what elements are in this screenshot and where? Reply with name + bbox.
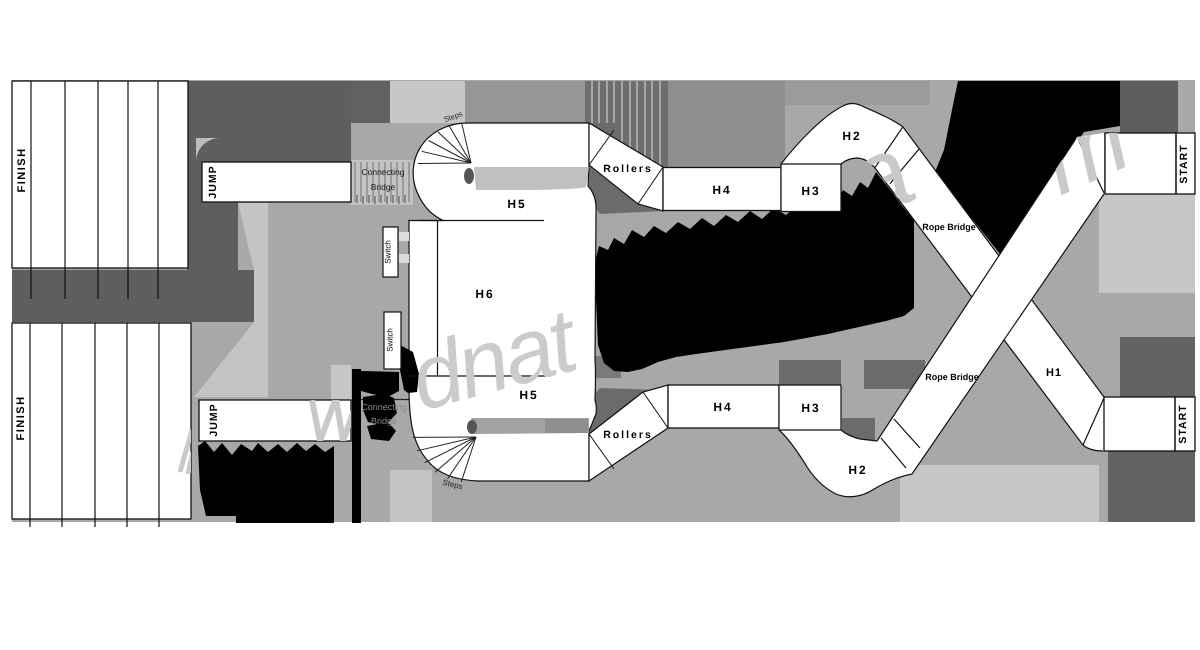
svg-text:Connecting: Connecting <box>361 402 407 412</box>
svg-text:H2: H2 <box>848 463 867 477</box>
svg-text:FINISH: FINISH <box>15 395 27 440</box>
svg-text:FINISH: FINISH <box>16 147 28 192</box>
svg-text:Connecting: Connecting <box>361 167 404 177</box>
svg-text:Switch: Switch <box>386 328 395 352</box>
svg-text:H1: H1 <box>1046 367 1062 379</box>
svg-text:JUMP: JUMP <box>207 165 219 198</box>
svg-text:JUMP: JUMP <box>208 403 220 436</box>
svg-text:H5: H5 <box>507 197 526 211</box>
svg-text:H3: H3 <box>801 401 820 415</box>
svg-text:Rope Bridge: Rope Bridge <box>925 372 979 382</box>
svg-text:START: START <box>1177 404 1189 443</box>
svg-text:Switch: Switch <box>384 240 393 264</box>
svg-text:H3: H3 <box>801 184 820 198</box>
svg-text:START: START <box>1178 144 1190 183</box>
svg-text:Bridge: Bridge <box>371 416 397 426</box>
svg-text:H6: H6 <box>475 287 494 301</box>
svg-text:H4: H4 <box>712 183 731 197</box>
svg-text:Rope Bridge: Rope Bridge <box>922 222 976 232</box>
svg-text:Rollers: Rollers <box>603 163 653 175</box>
svg-text:H4: H4 <box>713 400 732 414</box>
svg-text:Rollers: Rollers <box>603 429 653 441</box>
svg-text:Bridge: Bridge <box>371 182 396 192</box>
